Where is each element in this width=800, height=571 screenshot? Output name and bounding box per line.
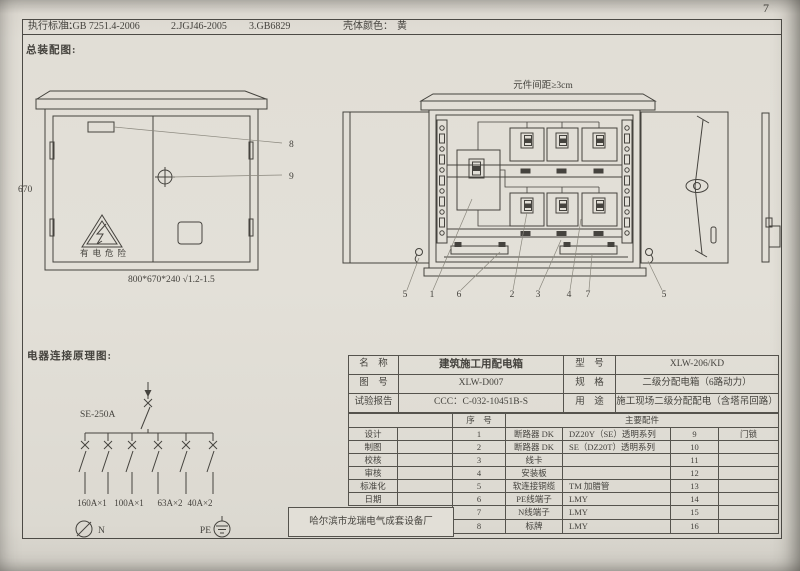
product-info-table: 名 称 建筑施工用配电箱 型 号 XLW-206/KD 图 号 XLW-D007…	[348, 355, 779, 413]
role-label: 日期	[349, 493, 398, 506]
right-door	[641, 112, 728, 263]
seq-no: 7	[453, 506, 506, 520]
seq-no: 6	[453, 493, 506, 506]
seq-no-2: 9	[671, 428, 719, 441]
one-line-schematic	[76, 382, 230, 537]
branch-circuit-symbols	[79, 433, 217, 494]
seq-header: 序 号	[453, 414, 506, 428]
part-name: PE线端子	[506, 493, 563, 506]
model-label: 型 号	[564, 356, 616, 375]
callout-label: 5	[662, 290, 667, 300]
branch-rating: 40A×2	[187, 498, 212, 508]
signature-cell	[398, 428, 453, 441]
table-row: 名 称 建筑施工用配电箱 型 号 XLW-206/KD	[349, 356, 779, 375]
part-spec	[563, 454, 671, 467]
neutral-symbol-icon	[76, 521, 92, 537]
product-name: 建筑施工用配电箱	[399, 356, 564, 375]
door-side-profile	[762, 113, 780, 262]
part-spec: LMY	[563, 493, 671, 506]
usage-label: 用 途	[564, 394, 616, 413]
seq-no-2: 15	[671, 506, 719, 520]
door-slot	[711, 227, 716, 243]
callout-leaders	[114, 127, 282, 177]
part-spec: TM 加腊管	[563, 480, 671, 493]
table-row: 标准化 5 软连接铜缆 TM 加腊管 13	[349, 480, 779, 493]
callout-label: 2	[510, 290, 515, 300]
callout-8: 8	[289, 140, 294, 150]
callout-label: 1	[430, 290, 435, 300]
callout-9: 9	[289, 172, 294, 182]
branch-breakers-bottom	[510, 193, 617, 226]
role-label: 审核	[349, 467, 398, 480]
scanned-spec-sheet: 7 执行标准： 1.GB 7251.4-2006 2.JGJ46-2005 3.…	[0, 0, 800, 571]
signature-cell	[398, 493, 453, 506]
usage-value: 施工现场二级分配配电（含塔吊回路）	[616, 394, 779, 413]
role-label: 校核	[349, 454, 398, 467]
part-name: 断路器 DK	[506, 441, 563, 454]
table-header-row: 序 号 主要配件	[349, 414, 779, 428]
callout-label: 4	[567, 290, 572, 300]
earth-symbol-icon	[214, 516, 230, 537]
pe-label: PE	[200, 526, 211, 536]
part-name-2	[719, 454, 779, 467]
seq-no-2: 11	[671, 454, 719, 467]
empty-cell	[349, 414, 453, 428]
drawing-no-value: XLW-D007	[399, 375, 564, 394]
test-report-label: 试验报告	[349, 394, 399, 413]
electric-hazard-icon	[82, 215, 122, 247]
mounting-rails	[437, 120, 632, 243]
seq-no-2: 10	[671, 441, 719, 454]
table-row: 制图 2 断路器 DK SE（DZ20T）透明系列 10	[349, 441, 779, 454]
clearance-note: 元件间距≥3cm	[513, 79, 573, 91]
arrow-down-icon	[145, 390, 152, 397]
seq-no: 4	[453, 467, 506, 480]
part-name-2: 门锁	[719, 428, 779, 441]
part-spec: LMY	[563, 506, 671, 520]
branch-rating: 160A×1	[77, 498, 107, 508]
signature-cell	[398, 454, 453, 467]
role-label: 设计	[349, 428, 398, 441]
model-value: XLW-206/KD	[616, 356, 779, 375]
door-latch-box	[178, 222, 202, 244]
warning-text: 有电危险	[80, 248, 130, 258]
parts-header: 主要配件	[506, 414, 779, 428]
seq-no-2: 13	[671, 480, 719, 493]
table-row: 审核 4 安装板 12	[349, 467, 779, 480]
seq-no-2: 12	[671, 467, 719, 480]
seq-no: 8	[453, 520, 506, 534]
test-report-value: CCC：C-032-10451B-S	[399, 394, 564, 413]
neutral-label: N	[98, 526, 105, 536]
height-dimension: 670	[18, 185, 33, 195]
part-name: 标牌	[506, 520, 563, 534]
seq-no: 3	[453, 454, 506, 467]
main-breaker	[457, 150, 500, 210]
part-name: 线卡	[506, 454, 563, 467]
callout-label: 3	[536, 290, 541, 300]
table-row: 日期 6 PE线端子 LMY 14	[349, 493, 779, 506]
role-label: 制图	[349, 441, 398, 454]
terminal-strips	[424, 243, 646, 277]
branch-breakers-top	[510, 128, 617, 161]
signature-cell	[398, 441, 453, 454]
part-spec: SE（DZ20T）透明系列	[563, 441, 671, 454]
table-row: 校核 3 线卡 11	[349, 454, 779, 467]
callout-label: 7	[586, 290, 591, 300]
part-spec: LMY	[563, 520, 671, 534]
drawing-no-label: 图 号	[349, 375, 399, 394]
espagnolette-rod	[686, 116, 709, 257]
table-row: 图 号 XLW-D007 规 格 二级分配电箱（6路动力）	[349, 375, 779, 394]
outline-dimension: 800*670*240 √1.2-1.5	[128, 274, 215, 285]
part-name-2	[719, 467, 779, 480]
branch-rating: 100A×1	[114, 498, 144, 508]
nameplate	[88, 122, 114, 132]
part-name-2	[719, 520, 779, 534]
name-label: 名 称	[349, 356, 399, 375]
part-name: 断路器 DK	[506, 428, 563, 441]
signature-cell	[398, 467, 453, 480]
part-name: N线端子	[506, 506, 563, 520]
part-name-2	[719, 480, 779, 493]
callout-label: 6	[457, 290, 462, 300]
part-spec	[563, 467, 671, 480]
part-name-2	[719, 506, 779, 520]
part-name: 软连接铜缆	[506, 480, 563, 493]
signature-cell	[398, 480, 453, 493]
branch-rating: 63A×2	[157, 498, 182, 508]
manufacturer-name: 哈尔滨市龙瑞电气成套设备厂	[288, 507, 454, 537]
main-breaker-rating: SE-250A	[80, 410, 116, 420]
seq-no-2: 16	[671, 520, 719, 534]
callout-label: 5	[403, 290, 408, 300]
role-label: 标准化	[349, 480, 398, 493]
part-name: 安装板	[506, 467, 563, 480]
seq-no: 1	[453, 428, 506, 441]
spec-label: 规 格	[564, 375, 616, 394]
part-spec: DZ20Y（SE）透明系列	[563, 428, 671, 441]
seq-no: 5	[453, 480, 506, 493]
seq-no: 2	[453, 441, 506, 454]
table-row: 试验报告 CCC：C-032-10451B-S 用 途 施工现场二级分配配电（含…	[349, 394, 779, 413]
part-name-2	[719, 441, 779, 454]
seq-no-2: 14	[671, 493, 719, 506]
closed-cabinet-drawing	[36, 91, 267, 270]
spec-value: 二级分配电箱（6路动力）	[616, 375, 779, 394]
open-cabinet-drawing	[343, 94, 780, 276]
part-name-2	[719, 493, 779, 506]
left-door	[343, 112, 429, 263]
table-row: 设计 1 断路器 DK DZ20Y（SE）透明系列 9 门锁	[349, 428, 779, 441]
